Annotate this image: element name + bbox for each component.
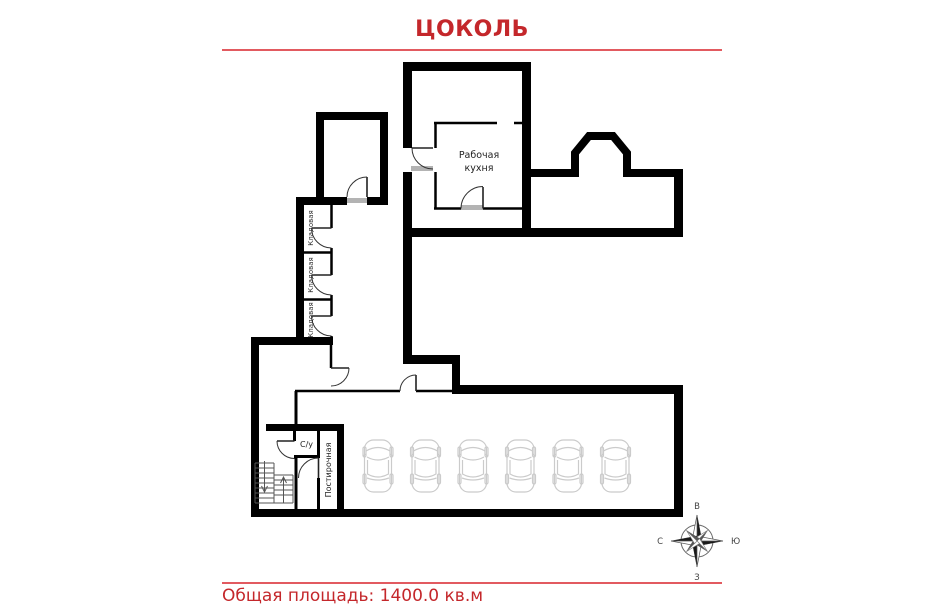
- room-label-kitchen-line2: кухня: [465, 163, 494, 174]
- car: [506, 440, 536, 492]
- compass-label-north: С: [657, 537, 663, 547]
- room-label-laundry: Постирочная: [324, 442, 333, 497]
- total-area-text: Общая площадь: 1400.0 кв.м: [222, 586, 483, 606]
- floor-plan-page: ЦОКОЛЬ: [0, 0, 926, 606]
- car: [553, 440, 583, 492]
- compass-label-south: Ю: [731, 537, 740, 547]
- car: [363, 440, 393, 492]
- bottom-rule-line: [222, 582, 722, 584]
- car: [458, 440, 488, 492]
- staircase: [255, 461, 293, 503]
- compass-label-east: В: [694, 502, 700, 512]
- room-label-bathroom: С/у: [300, 440, 313, 449]
- car: [601, 440, 631, 492]
- room-label-storage-1: Кладовая: [307, 210, 315, 245]
- bay-window-wall: [575, 136, 627, 177]
- car: [411, 440, 441, 492]
- room-label-kitchen-line1: Рабочая: [459, 150, 499, 161]
- compass-star: [671, 515, 723, 567]
- garage-cars: [363, 440, 631, 492]
- floor-plan-drawing: Рабочая кухня Кладовая Кладовая Кладовая…: [0, 0, 926, 606]
- room-label-storage-2: Кладовая: [307, 257, 315, 292]
- room-label-storage-3: Кладовая: [307, 302, 315, 337]
